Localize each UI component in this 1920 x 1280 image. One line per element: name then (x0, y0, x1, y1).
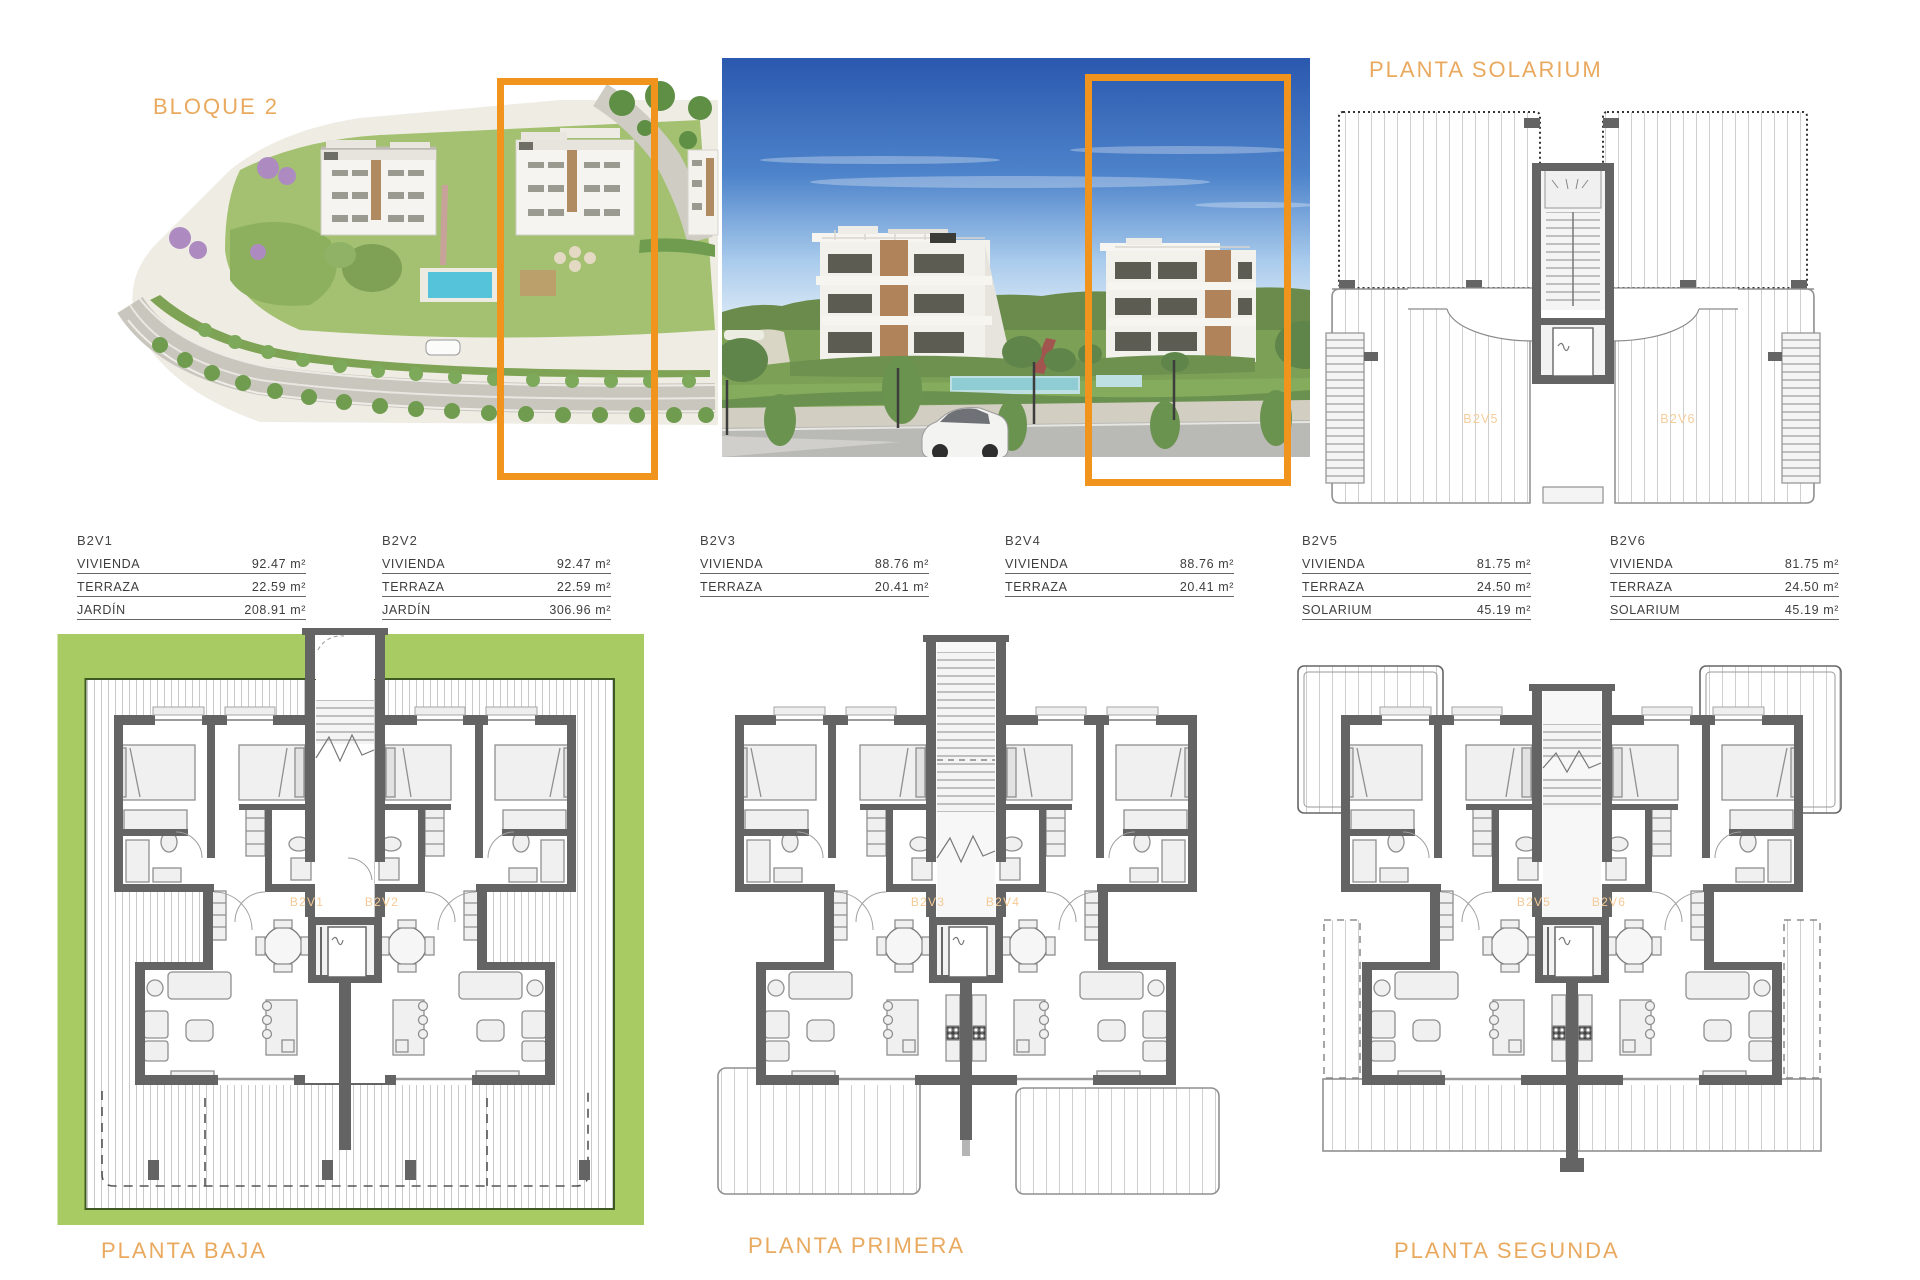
svg-text:B2V5: B2V5 (1463, 412, 1498, 426)
svg-text:B2V5: B2V5 (1517, 895, 1551, 909)
svg-text:B2V4: B2V4 (986, 895, 1020, 909)
svg-text:B2V6: B2V6 (1592, 895, 1626, 909)
svg-text:B2V3: B2V3 (911, 895, 945, 909)
svg-text:B2V6: B2V6 (1660, 412, 1695, 426)
svg-text:B2V1: B2V1 (290, 895, 324, 909)
svg-text:B2V2: B2V2 (365, 895, 399, 909)
